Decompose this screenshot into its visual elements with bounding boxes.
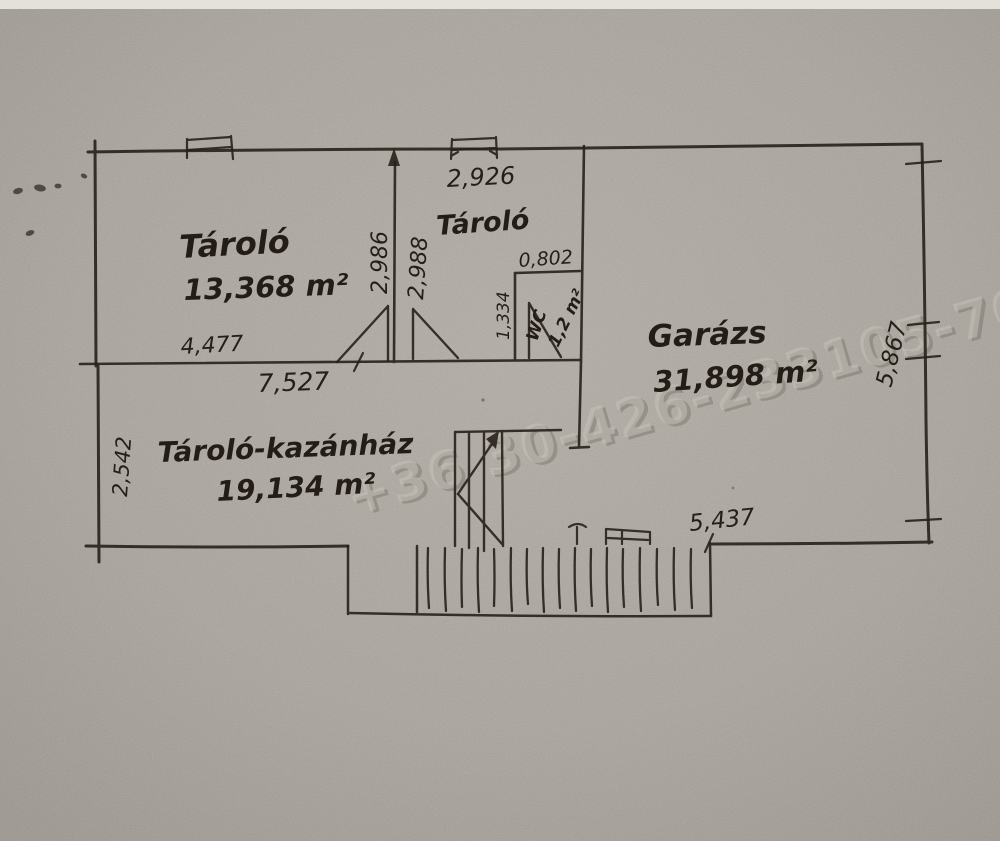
paper-grain-texture	[0, 0, 1000, 841]
dim-middle-room-width: 2,926	[446, 161, 516, 193]
floor-plan-svg: +36 30-426-233105-70-209-2 +36 30-426-23…	[0, 0, 1000, 841]
label-garage-name: Garázs	[647, 315, 767, 355]
wall-left-lower	[98, 366, 99, 562]
label-storage-upper-name: Tároló	[178, 222, 290, 266]
stair-right-edge	[502, 431, 503, 546]
dim-wc-door-width: 0,802	[518, 246, 574, 272]
scan-edge-strip	[0, 0, 1000, 9]
dim-wc-depth: 1,334	[494, 291, 514, 340]
dim-boiler-room-depth: 2,542	[108, 436, 136, 498]
wall-left-upper	[95, 141, 96, 366]
wall-end-serif	[570, 447, 589, 448]
label-storage-upper-area: 13,368 m²	[183, 267, 349, 307]
label-storage-middle-name: Tároló	[435, 205, 530, 242]
dim-storage-depth-left: 2,986	[368, 231, 393, 294]
terrace-right-edge	[710, 543, 711, 616]
wall-bottom-boiler	[86, 546, 348, 547]
dim-lower-rooms-width: 7,527	[257, 367, 330, 398]
scanned-floor-plan: +36 30-426-233105-70-209-2 +36 30-426-23…	[0, 0, 1000, 841]
dim-storage-depth-right: 2,988	[404, 236, 433, 301]
wall-between-storages	[394, 162, 395, 362]
dim-storage-width: 4,477	[180, 332, 244, 360]
